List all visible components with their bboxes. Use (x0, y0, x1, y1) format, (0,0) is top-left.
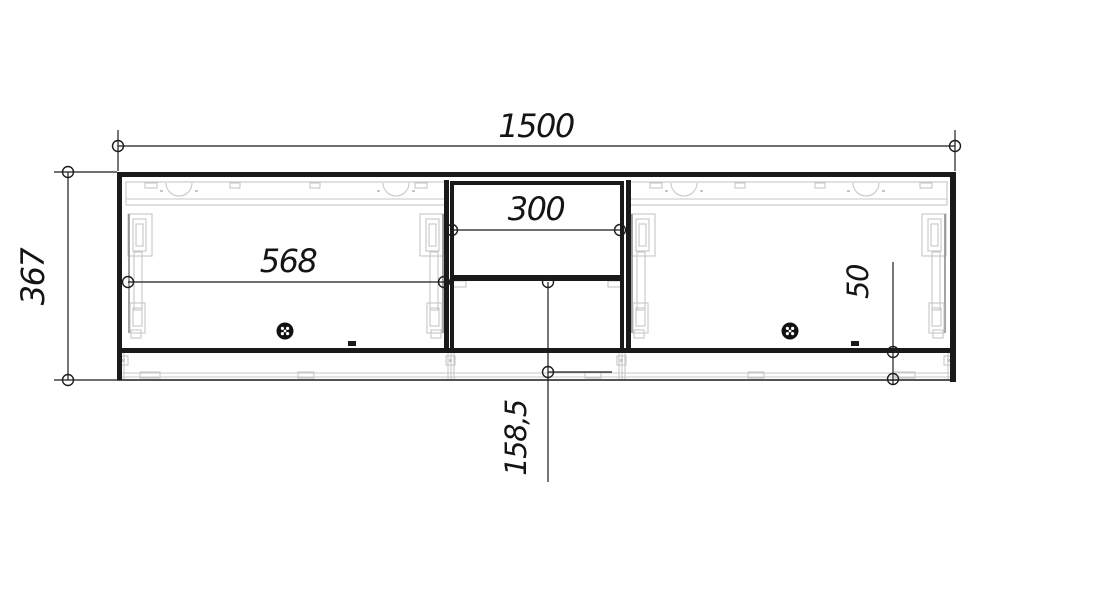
left-door-edge (444, 180, 449, 348)
left-top-rail (126, 182, 445, 205)
dimension-plinth-height: 50 (841, 262, 899, 385)
door-catch (348, 341, 356, 346)
knob-right-door (782, 323, 799, 340)
niche-left-side (450, 181, 454, 348)
dimension-total-height: 367 (14, 167, 117, 386)
left-side-panel (117, 172, 122, 380)
dim-label-niche-lower-height: 158,5 (499, 400, 533, 476)
hinge-cup (160, 183, 198, 196)
bottom-panel (117, 348, 956, 353)
lift-stay (922, 214, 946, 338)
lift-stay (128, 214, 152, 338)
hinge-cup (847, 183, 885, 196)
dim-label-plinth-height: 50 (841, 265, 875, 299)
dim-label-total-width: 1500 (498, 107, 574, 145)
knob-left-door (277, 323, 294, 340)
niche-top-edge (450, 181, 624, 185)
dim-label-niche-width: 300 (508, 190, 565, 228)
right-door-edge (626, 180, 631, 348)
shelf-support (452, 281, 466, 287)
lift-stay (420, 214, 444, 338)
niche-shelf (450, 275, 624, 281)
dim-label-left-door-width: 568 (260, 242, 317, 280)
plinth-hardware (119, 353, 953, 379)
lift-stay (631, 214, 655, 338)
hinge-cup (665, 183, 703, 196)
hinge-cup (377, 183, 415, 196)
right-side-panel (950, 172, 956, 382)
door-catch (851, 341, 859, 346)
dimension-total-width: 1500 (113, 107, 961, 171)
dim-label-total-height: 367 (14, 247, 52, 306)
cad-canvas: 1500 367 568 300 158,5 50 (0, 0, 1100, 600)
dimension-niche-width: 300 (447, 190, 626, 236)
shelf-support (608, 281, 622, 287)
dimension-left-door-width: 568 (123, 242, 453, 288)
top-panel (117, 172, 956, 177)
niche-right-side (620, 181, 624, 348)
right-top-rail (630, 182, 947, 205)
dimension-niche-lower-height: 158,5 (499, 277, 612, 483)
